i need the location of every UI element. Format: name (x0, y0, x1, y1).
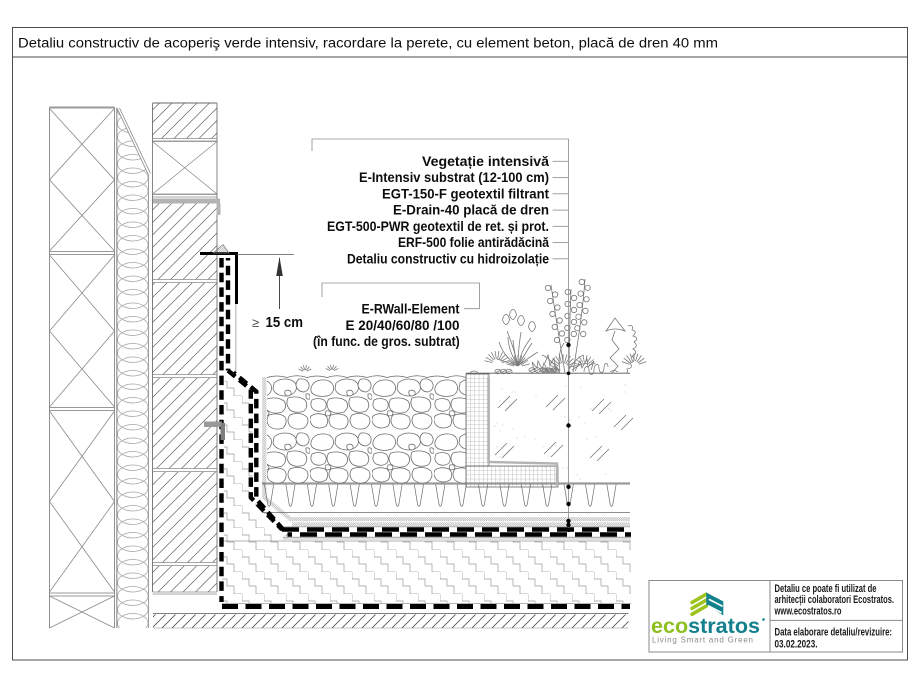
svg-text:Vegetație intensivă: Vegetație intensivă (422, 153, 549, 169)
svg-text:(în func. de gros. subtrat): (în func. de gros. subtrat) (313, 333, 460, 349)
svg-text:E 20/40/60/80 /100: E 20/40/60/80 /100 (346, 317, 460, 333)
svg-text:Detaliu constructiv cu hidroiz: Detaliu constructiv cu hidroizolație (347, 250, 549, 266)
svg-text:EGT-150-F geotextil filtrant: EGT-150-F geotextil filtrant (382, 185, 549, 201)
svg-text:Detaliu constructiv de acoperi: Detaliu constructiv de acoperiş verde in… (18, 36, 718, 52)
svg-text:15 cm: 15 cm (266, 315, 304, 331)
svg-text:E-Intensiv substrat (12-100 cm: E-Intensiv substrat (12-100 cm) (359, 169, 549, 185)
svg-text:E-Drain-40 placă de dren: E-Drain-40 placă de dren (393, 202, 549, 218)
svg-text:EGT-500-PWR geotextil de ret.: EGT-500-PWR geotextil de ret. și prot. (327, 218, 549, 234)
svg-text:www.ecostratos.ro: www.ecostratos.ro (774, 606, 842, 618)
svg-text:Data elaborare detaliu/revizui: Data elaborare detaliu/revizuire: (775, 627, 893, 639)
svg-text:Living Smart and Green: Living Smart and Green (652, 636, 753, 645)
svg-text:03.02.2023.: 03.02.2023. (775, 638, 818, 650)
svg-text:arhitecții colaboratori Ecostr: arhitecții colaboratori Ecostratos. (775, 594, 895, 606)
svg-text:≥: ≥ (252, 315, 259, 330)
svg-text:ERF-500 folie antirădăcină: ERF-500 folie antirădăcină (398, 234, 549, 250)
svg-text:E-RWall-Element: E-RWall-Element (362, 301, 460, 317)
